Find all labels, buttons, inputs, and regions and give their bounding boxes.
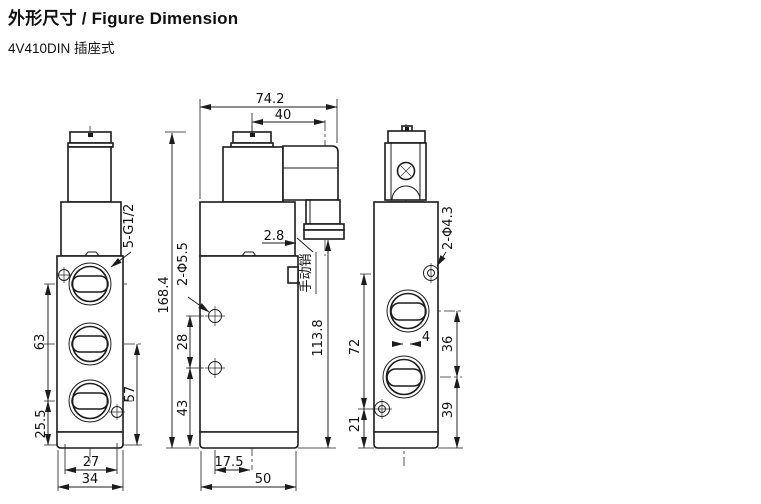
figure-dimension-page: 外形尺寸 / Figure Dimension 4V410DIN 插座式	[0, 0, 761, 504]
dim-2-d4-3: 2-Φ4.3	[441, 206, 456, 250]
dim-port-thread: 5-G1/2	[122, 204, 137, 248]
dim-28: 28	[176, 334, 191, 351]
manual-pin-label: 手动销	[299, 253, 314, 292]
dim-57: 57	[123, 386, 138, 403]
valve-main-body-side	[200, 256, 298, 432]
coil-body	[68, 147, 111, 202]
manual-pin	[288, 267, 298, 283]
dim-25-5: 25.5	[34, 410, 49, 439]
coil-knurled-cap-side	[231, 132, 273, 147]
dim-36: 36	[441, 336, 456, 353]
dim-74-2: 74.2	[256, 92, 285, 107]
rear-view: 2-Φ4.3 72 21 4 36 39	[348, 124, 463, 466]
valve-upper-body	[61, 202, 121, 256]
dim-113-8: 113.8	[311, 319, 326, 356]
dim-39: 39	[441, 402, 456, 419]
dim-17-5: 17.5	[215, 455, 244, 470]
base-plate-side	[200, 432, 298, 448]
dim-63: 63	[33, 334, 48, 351]
dim-168-4: 168.4	[157, 276, 172, 313]
valve-main-body	[57, 256, 123, 432]
dim-40: 40	[275, 108, 292, 123]
dim-50: 50	[255, 472, 272, 487]
coil-knurled-cap	[68, 132, 113, 147]
base-plate	[57, 432, 123, 448]
dim-2-d5-5: 2-Φ5.5	[176, 242, 191, 286]
coil-body-side	[223, 147, 283, 202]
dim-4: 4	[422, 330, 430, 345]
dim-34: 34	[82, 472, 99, 487]
dim-2-8: 2.8	[264, 229, 285, 244]
dim-72: 72	[348, 339, 363, 356]
dim-27: 27	[83, 455, 100, 470]
dim-43: 43	[176, 400, 191, 417]
side-view: 74.2 40 168.4 2-Φ5.5 28 43 113.8 2.8 手动销…	[157, 92, 344, 491]
base-plate-rear	[374, 432, 438, 448]
valve-dimension-drawing: 5-G1/2 63 25.5 57 27 34	[0, 0, 761, 504]
connector-screw	[398, 163, 415, 180]
dim-21: 21	[348, 416, 363, 433]
front-view: 5-G1/2 63 25.5 57 27 34	[33, 126, 142, 491]
